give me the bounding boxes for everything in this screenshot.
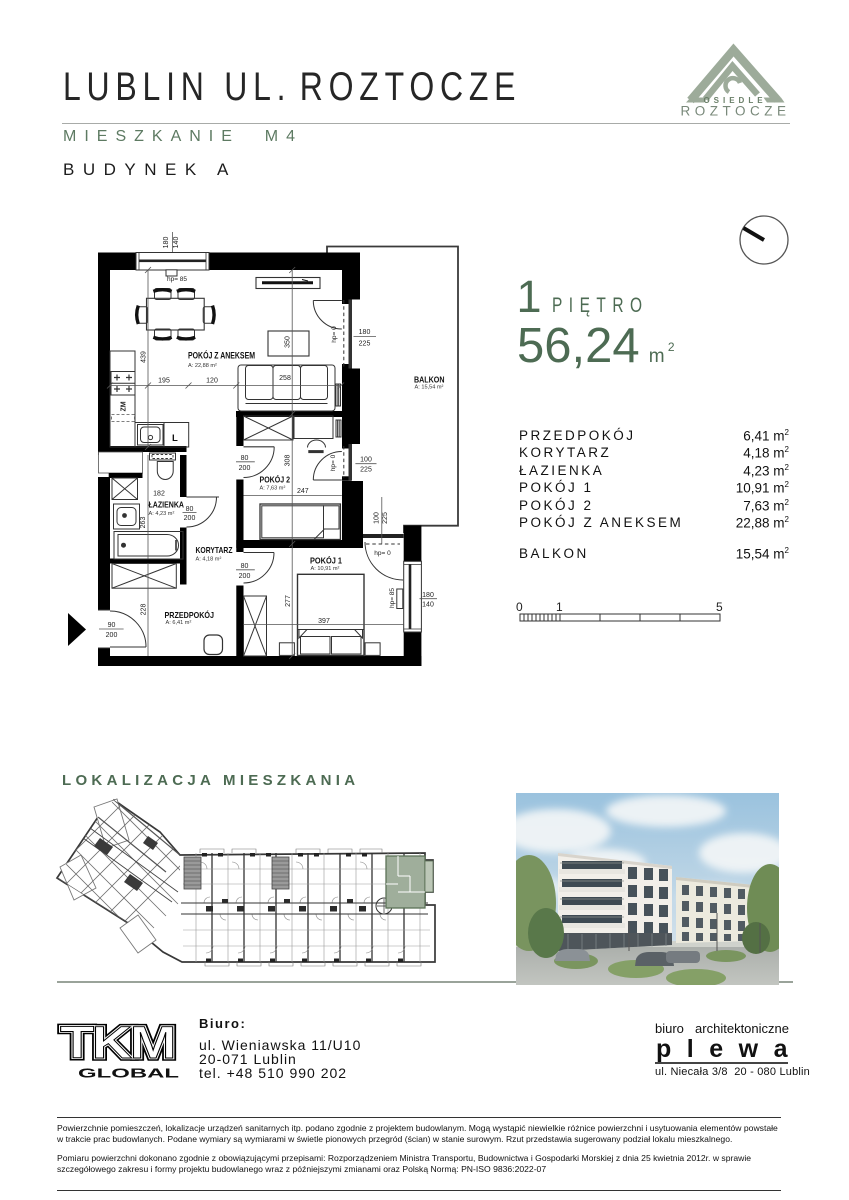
svg-text:TKM: TKM bbox=[60, 1017, 174, 1068]
svg-text:GLOBAL: GLOBAL bbox=[78, 1066, 179, 1081]
